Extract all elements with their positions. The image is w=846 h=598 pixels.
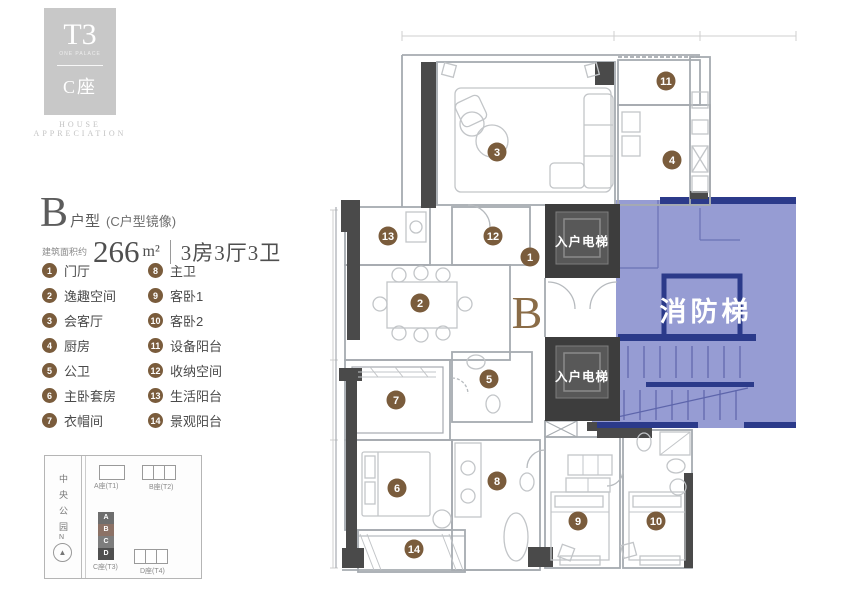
legend-item: 14景观阳台 [148, 408, 222, 433]
stack-unit-a: A [98, 512, 114, 524]
legend-item: 7衣帽间 [42, 408, 116, 433]
legend-label: 门厅 [64, 261, 90, 280]
legend-number-badge: 3 [42, 313, 57, 328]
stack-unit-d: D [98, 548, 114, 560]
unit-letter: B [40, 192, 68, 234]
legend-label: 收纳空间 [170, 361, 222, 380]
entry-elevator-bottom: 入户电梯 [545, 337, 620, 421]
legend-item: 10客卧2 [148, 308, 222, 333]
legend-label: 厨房 [64, 336, 90, 355]
legend-label: 生活阳台 [170, 386, 222, 405]
legend-number-badge: 9 [148, 288, 163, 303]
north-label: N [59, 534, 64, 541]
floor-plan: 消防梯 [330, 25, 816, 591]
building-a-shape [99, 465, 125, 480]
brand-tagline: HOUSE APPRECIATION [20, 121, 140, 139]
plan-marker-9: 9 [569, 512, 588, 531]
legend-column-2: 8主卫 9客卧1 10客卧2 11设备阳台 12收纳空间 13生活阳台 14景观… [148, 258, 222, 433]
legend-number-badge: 11 [148, 338, 163, 353]
building-a-label: A座(T1) [94, 481, 119, 491]
svg-text:3: 3 [494, 147, 500, 159]
building-c-shape: A B C D [98, 512, 114, 560]
building-b-label: B座(T2) [149, 482, 174, 492]
legend-item: 4厨房 [42, 333, 116, 358]
project-logo: T3 ONE PALACE C座 [44, 8, 116, 115]
fire-stair-label: 消防梯 [660, 297, 753, 327]
legend-item: 3会客厅 [42, 308, 116, 333]
svg-text:2: 2 [417, 298, 423, 310]
legend-label: 客卧2 [170, 311, 203, 330]
tagline-line2: APPRECIATION [20, 130, 140, 139]
plan-marker-14: 14 [405, 540, 424, 559]
legend-number-badge: 8 [148, 263, 163, 278]
plan-marker-4: 4 [663, 151, 682, 170]
svg-text:7: 7 [393, 395, 399, 407]
entry-elevator-bottom-label: 入户电梯 [555, 369, 609, 384]
unit-title: B 户型 (C户型镜像) [40, 192, 176, 234]
building-c-label: C座(T3) [93, 562, 118, 572]
legend-number-badge: 5 [42, 363, 57, 378]
fire-stair-zone: 消防梯 [592, 197, 796, 428]
plan-marker-12: 12 [484, 227, 503, 246]
logo-sub-text: ONE PALACE [59, 51, 101, 57]
plan-marker-1: 1 [521, 248, 540, 267]
svg-text:12: 12 [487, 231, 499, 243]
plan-marker-2: 2 [411, 294, 430, 313]
legend-label: 客卧1 [170, 286, 203, 305]
legend-number-badge: 12 [148, 363, 163, 378]
legend-label: 公卫 [64, 361, 90, 380]
logo-main-text: T3 [63, 20, 96, 50]
logo-tower-label: C座 [63, 73, 97, 99]
svg-text:10: 10 [650, 516, 662, 528]
legend-item: 8主卫 [148, 258, 222, 283]
floorplan-page: T3 ONE PALACE C座 HOUSE APPRECIATION B 户型… [0, 0, 846, 598]
entry-elevator-top-label: 入户电梯 [555, 234, 609, 249]
svg-text:14: 14 [408, 544, 421, 556]
legend-number-badge: 2 [42, 288, 57, 303]
legend-item: 5公卫 [42, 358, 116, 383]
unit-mark-letter: B [512, 287, 543, 338]
legend-label: 景观阳台 [170, 411, 222, 430]
plan-marker-6: 6 [388, 479, 407, 498]
legend-item: 2逸趣空间 [42, 283, 116, 308]
entry-elevator-top: 入户电梯 [545, 204, 620, 278]
legend-number-badge: 7 [42, 413, 57, 428]
legend-item: 12收纳空间 [148, 358, 222, 383]
legend-number-badge: 14 [148, 413, 163, 428]
legend-item: 11设备阳台 [148, 333, 222, 358]
plan-marker-10: 10 [647, 512, 666, 531]
legend-item: 13生活阳台 [148, 383, 222, 408]
legend-label: 逸趣空间 [64, 286, 116, 305]
legend-number-badge: 1 [42, 263, 57, 278]
building-d-label: D座(T4) [140, 566, 165, 576]
plan-marker-13: 13 [379, 227, 398, 246]
plan-marker-8: 8 [488, 472, 507, 491]
legend-number-badge: 10 [148, 313, 163, 328]
unit-type-label: 户型 [70, 210, 100, 231]
mirror-note: (C户型镜像) [106, 211, 176, 230]
svg-text:8: 8 [494, 476, 500, 488]
stack-unit-c: C [98, 536, 114, 548]
legend-label: 衣帽间 [64, 411, 103, 430]
svg-text:11: 11 [660, 76, 672, 88]
legend-number-badge: 6 [42, 388, 57, 403]
legend-item: 1门厅 [42, 258, 116, 283]
site-plan-strip-line [85, 456, 86, 578]
site-plan: 中央公园 N ▲ A座(T1) B座(T2) A B C D C座(T3) D座… [44, 455, 202, 579]
legend-column-1: 1门厅 2逸趣空间 3会客厅 4厨房 5公卫 6主卧套房 7衣帽间 [42, 258, 116, 433]
building-d-shape [135, 549, 168, 564]
legend-label: 设备阳台 [170, 336, 222, 355]
central-park-label: 中央公园 [57, 474, 70, 538]
plan-marker-5: 5 [480, 370, 499, 389]
plan-marker-3: 3 [488, 143, 507, 162]
legend-number-badge: 13 [148, 388, 163, 403]
svg-text:4: 4 [669, 155, 676, 167]
svg-text:9: 9 [575, 516, 581, 528]
plan-marker-11: 11 [657, 72, 676, 91]
svg-text:5: 5 [486, 374, 492, 386]
legend-label: 主卫 [170, 261, 196, 280]
stack-unit-b: B [98, 524, 114, 536]
svg-text:6: 6 [394, 483, 400, 495]
svg-text:13: 13 [382, 231, 394, 243]
legend-item: 9客卧1 [148, 283, 222, 308]
compass-icon: ▲ [53, 543, 72, 562]
legend-number-badge: 4 [42, 338, 57, 353]
logo-divider [57, 65, 103, 66]
area-label: 建筑面积约 [42, 245, 87, 258]
legend-item: 6主卧套房 [42, 383, 116, 408]
legend-label: 会客厅 [64, 311, 103, 330]
plan-marker-7: 7 [387, 391, 406, 410]
svg-text:1: 1 [527, 252, 533, 264]
legend-label: 主卧套房 [64, 386, 116, 405]
building-b-shape [143, 465, 176, 480]
